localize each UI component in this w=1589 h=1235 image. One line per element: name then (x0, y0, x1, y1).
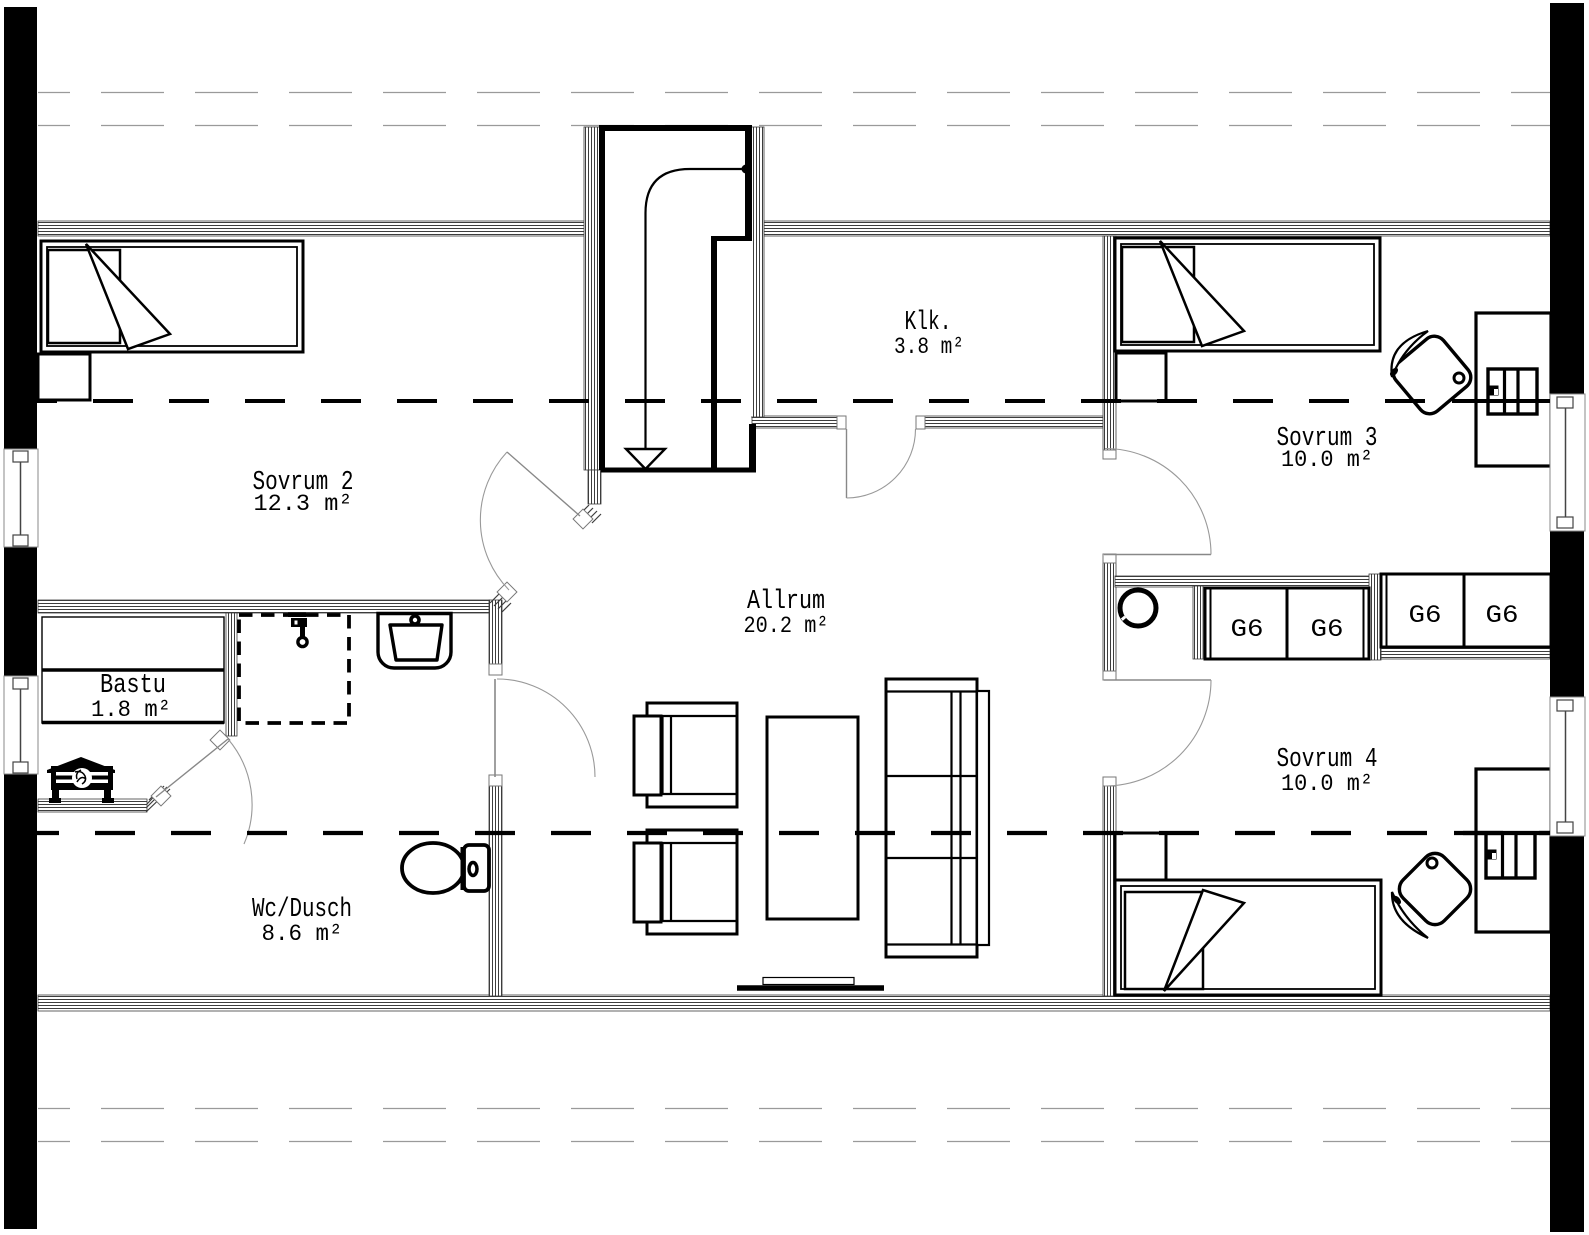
svg-text:3.8 m²: 3.8 m² (894, 334, 964, 360)
svg-text:Allrum: Allrum (747, 586, 825, 616)
svg-text:10.0 m²: 10.0 m² (1281, 771, 1373, 797)
svg-text:20.2 m²: 20.2 m² (744, 613, 829, 639)
svg-text:Bastu: Bastu (100, 670, 166, 700)
svg-text:G6: G6 (1409, 601, 1442, 630)
svg-text:8.6 m²: 8.6 m² (262, 921, 343, 947)
svg-text:12.3 m²: 12.3 m² (254, 491, 353, 517)
svg-text:Sovrum 4: Sovrum 4 (1277, 744, 1378, 774)
svg-text:G6: G6 (1311, 615, 1344, 644)
svg-text:Klk.: Klk. (905, 307, 952, 337)
svg-text:G6: G6 (1486, 601, 1519, 630)
svg-text:G6: G6 (1231, 615, 1264, 644)
svg-text:10.0 m²: 10.0 m² (1281, 447, 1373, 473)
svg-text:Wc/Dusch: Wc/Dusch (252, 894, 352, 924)
svg-text:1.8 m²: 1.8 m² (91, 697, 171, 723)
